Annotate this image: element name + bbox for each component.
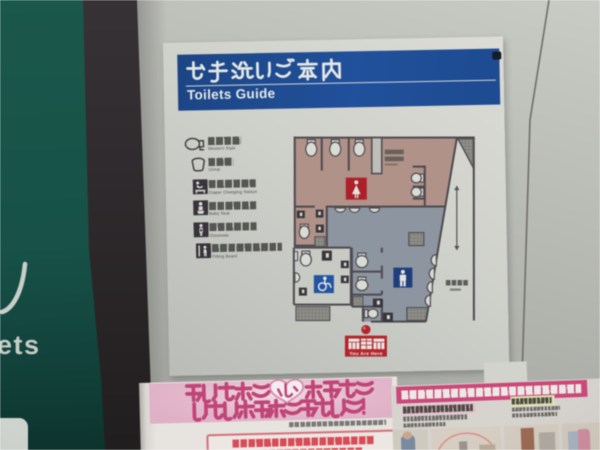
- svg-text:You Are Here: You Are Here: [349, 351, 382, 357]
